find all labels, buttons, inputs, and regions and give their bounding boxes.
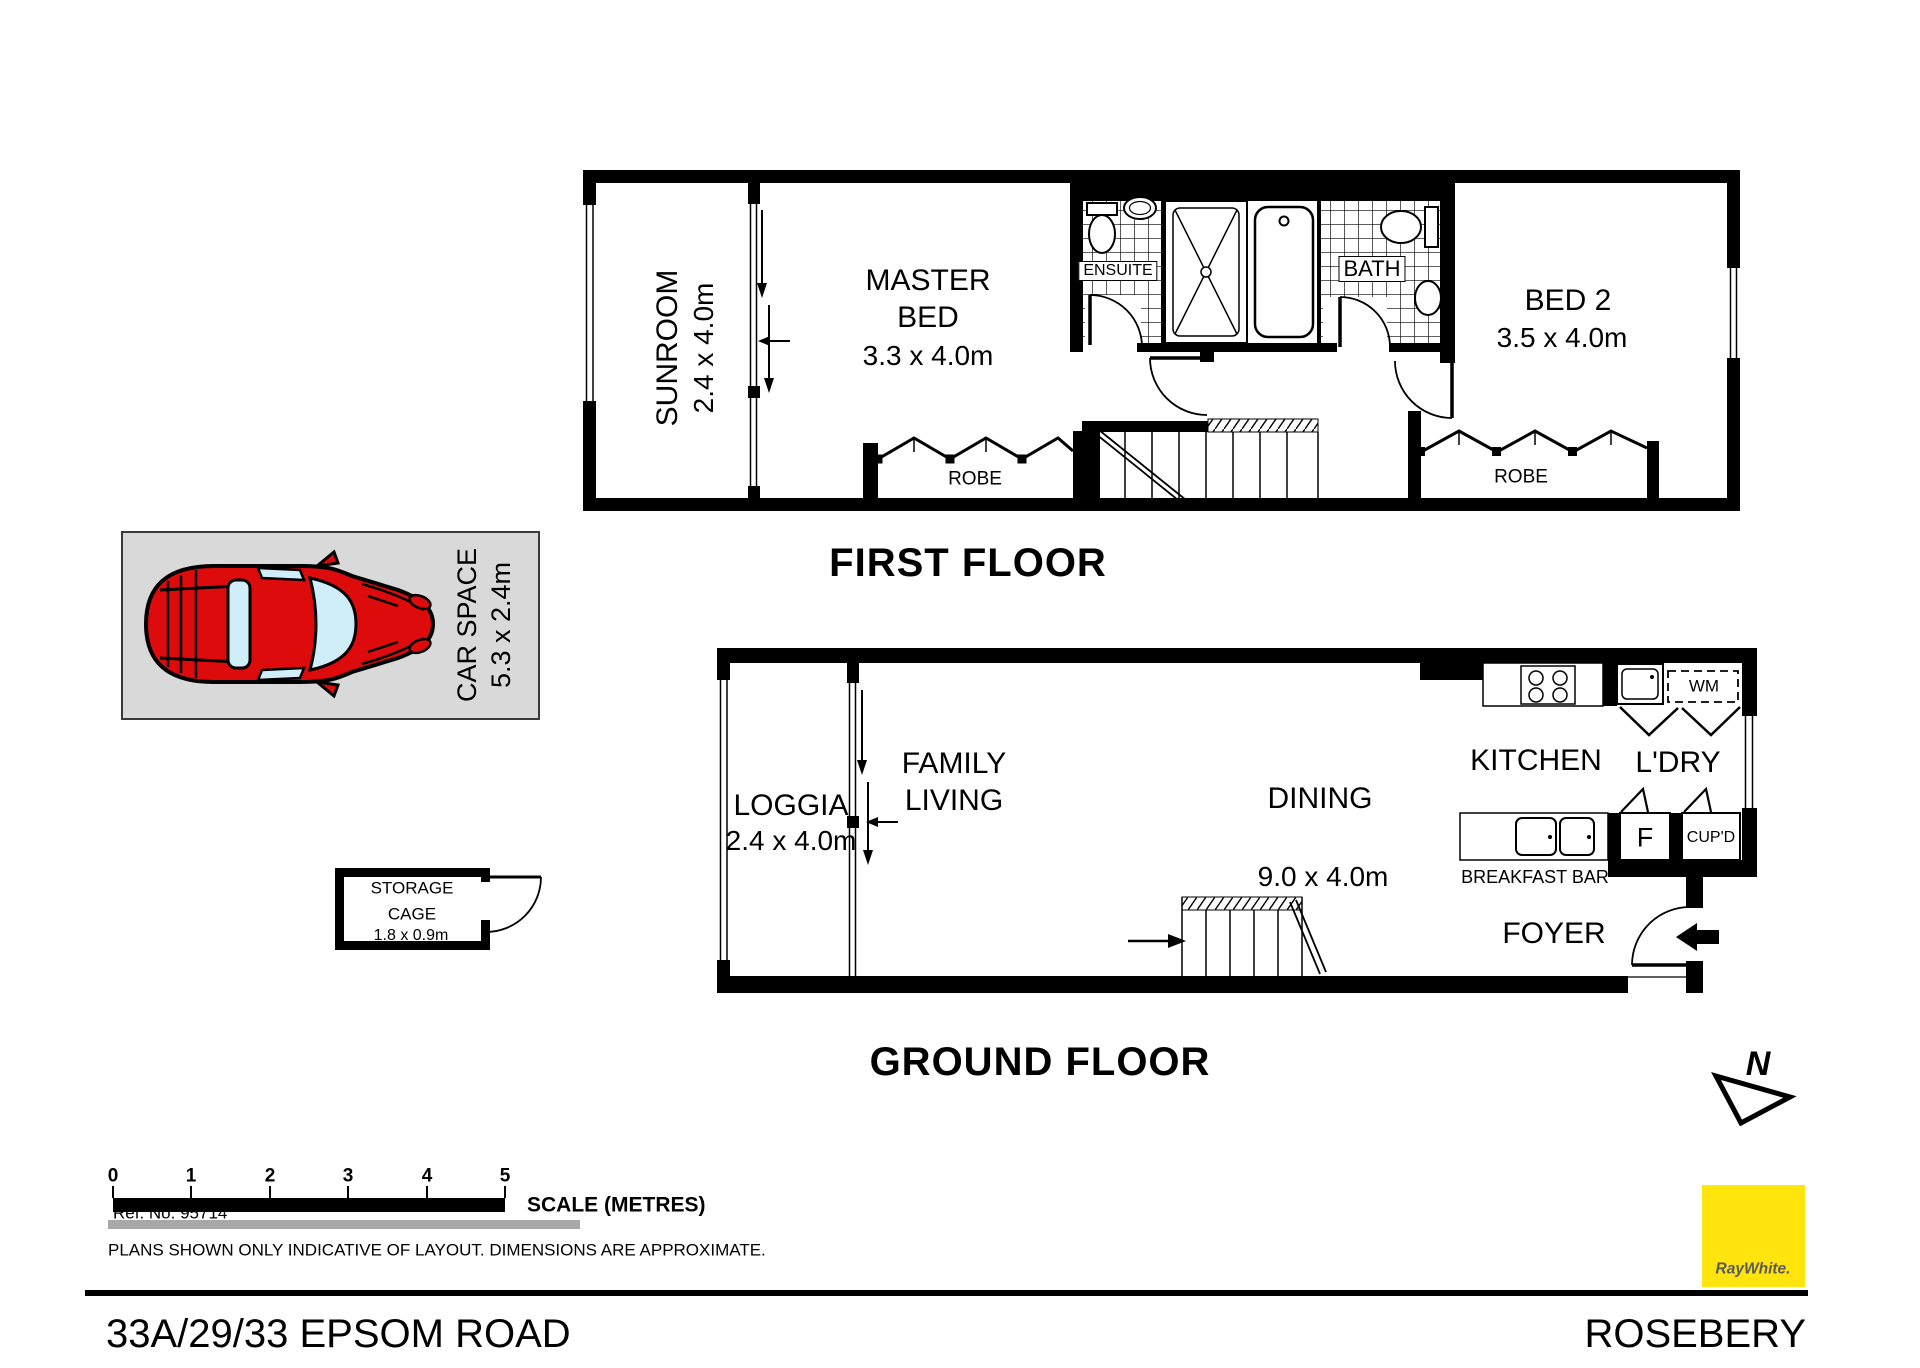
door-leaf-icon — [1684, 789, 1711, 812]
wall — [1686, 877, 1703, 908]
wall — [1317, 201, 1321, 343]
washing-machine-label: WM — [1689, 678, 1719, 695]
scale-tick — [504, 1186, 506, 1198]
room-label-family-living: FAMILY — [902, 749, 1006, 779]
scale-tick-label: 4 — [422, 1167, 433, 1186]
raywhite-wordmark: RayWhite. — [1716, 1261, 1791, 1277]
scale-tick — [347, 1186, 349, 1198]
wall — [1389, 343, 1440, 352]
room-label-ensuite: ENSUITE — [1078, 261, 1157, 281]
room-label-foyer: FOYER — [1502, 919, 1605, 949]
toilet-icon — [1087, 203, 1117, 253]
north-label: N — [1746, 1047, 1771, 1081]
stairs — [1073, 419, 1318, 500]
room-dims-dining: 9.0 x 4.0m — [1258, 863, 1389, 891]
scale-tick-label: 1 — [186, 1167, 197, 1186]
window-icon — [1742, 716, 1757, 808]
basin-icon — [1415, 281, 1441, 315]
breakfast-bar-island — [1460, 813, 1608, 860]
room-label-bed2: BED 2 — [1525, 286, 1612, 316]
footer-rule — [85, 1290, 1808, 1296]
room-label-family-living: LIVING — [905, 786, 1003, 816]
gray-divider-bar — [108, 1220, 580, 1229]
door-arc — [486, 877, 541, 932]
basin-icon — [1124, 197, 1156, 219]
room-label-robe: ROBE — [1494, 468, 1548, 487]
door-swing-area — [1323, 297, 1387, 343]
wall — [1608, 860, 1757, 877]
scale-tick — [190, 1186, 192, 1198]
room-dims-sunroom: 2.4 x 4.0m — [686, 270, 722, 427]
room-dims-master-bed: 3.3 x 4.0m — [863, 342, 994, 370]
wall — [1070, 183, 1455, 201]
wall — [1321, 343, 1337, 352]
storage-cage-dims: 1.8 x 0.9m — [374, 928, 449, 944]
breakfast-bar-label: BREAKFAST BAR — [1461, 868, 1609, 886]
bathtub-icon — [1255, 207, 1313, 337]
scale-tick-label: 5 — [500, 1167, 511, 1186]
scale-tick — [269, 1186, 271, 1198]
wall — [717, 976, 1628, 993]
cooktop-icon — [1521, 666, 1575, 704]
car-space-label: CAR SPACE — [450, 548, 484, 702]
room-label-sunroom: SUNROOM — [650, 270, 686, 427]
toilet-icon — [1381, 207, 1438, 247]
room-label-master-bed: MASTER — [865, 266, 990, 296]
scale-tick — [112, 1186, 114, 1198]
sliding-door-icon — [847, 663, 898, 976]
floorplan-page: SUNROOM 2.4 x 4.0m MASTER BED 3.3 x 4.0m… — [0, 0, 1920, 1368]
car-space-dims: 5.3 x 2.4m — [484, 548, 518, 702]
room-label-dining: DINING — [1268, 784, 1373, 814]
window-icon — [1727, 268, 1740, 358]
disclaimer-text: PLANS SHOWN ONLY INDICATIVE OF LAYOUT. D… — [108, 1242, 766, 1259]
ground-floor-title: GROUND FLOOR — [870, 1042, 1211, 1082]
room-label-laundry: L'DRY — [1635, 748, 1720, 778]
room-label-kitchen: KITCHEN — [1470, 746, 1602, 776]
room-dims-loggia: 2.4 x 4.0m — [726, 827, 857, 855]
scale-bar — [113, 1198, 505, 1212]
wall — [1137, 343, 1321, 352]
wall — [1420, 663, 1483, 680]
address-text: 33A/29/33 EPSOM ROAD — [106, 1314, 571, 1354]
door-swing-area — [1085, 295, 1141, 343]
raywhite-logo: RayWhite. — [1702, 1185, 1805, 1287]
scale-tick-label: 3 — [343, 1167, 354, 1186]
kitchen-bench — [1483, 663, 1603, 706]
bifold-door-icon — [1620, 707, 1740, 735]
scale-tick — [426, 1186, 428, 1198]
room-label-loggia: LOGGIA — [733, 791, 848, 821]
stairs — [1128, 897, 1326, 976]
storage-cage-label: CAGE — [388, 906, 436, 923]
wall — [717, 648, 1757, 663]
scale-caption: SCALE (METRES) — [527, 1195, 706, 1216]
cupboard-label: CUP'D — [1687, 830, 1735, 846]
scale-tick-label: 0 — [108, 1167, 119, 1186]
wall — [1608, 813, 1620, 860]
wall — [583, 170, 1740, 183]
room-label-robe: ROBE — [948, 470, 1002, 489]
room-label-master-bed: BED — [897, 303, 959, 333]
north-arrow-icon — [1716, 1076, 1790, 1123]
double-sink-icon — [1516, 818, 1594, 855]
sliding-door-icon — [748, 183, 790, 498]
storage-cage-label: STORAGE — [371, 880, 454, 897]
door-leaf-icon — [1621, 789, 1648, 812]
wall — [1603, 663, 1617, 706]
door-arc — [1150, 358, 1207, 415]
window-icon — [717, 680, 730, 960]
wall — [1440, 183, 1455, 363]
wall — [583, 498, 1740, 511]
fridge-label: F — [1637, 825, 1654, 852]
wall — [1670, 813, 1682, 860]
suburb-text: ROSEBERY — [1584, 1314, 1806, 1354]
door-arc — [1395, 361, 1452, 418]
window-icon — [583, 205, 596, 401]
first-floor-title: FIRST FLOOR — [829, 543, 1107, 583]
shower-icon — [1165, 201, 1247, 343]
entry-arrow-icon — [1676, 923, 1719, 951]
floorplan-graphics — [0, 0, 1920, 1368]
scale-tick-label: 2 — [265, 1167, 276, 1186]
room-dims-bed2: 3.5 x 4.0m — [1497, 324, 1628, 352]
laundry-sink-icon — [1617, 664, 1663, 704]
room-label-bath: BATH — [1338, 256, 1405, 282]
